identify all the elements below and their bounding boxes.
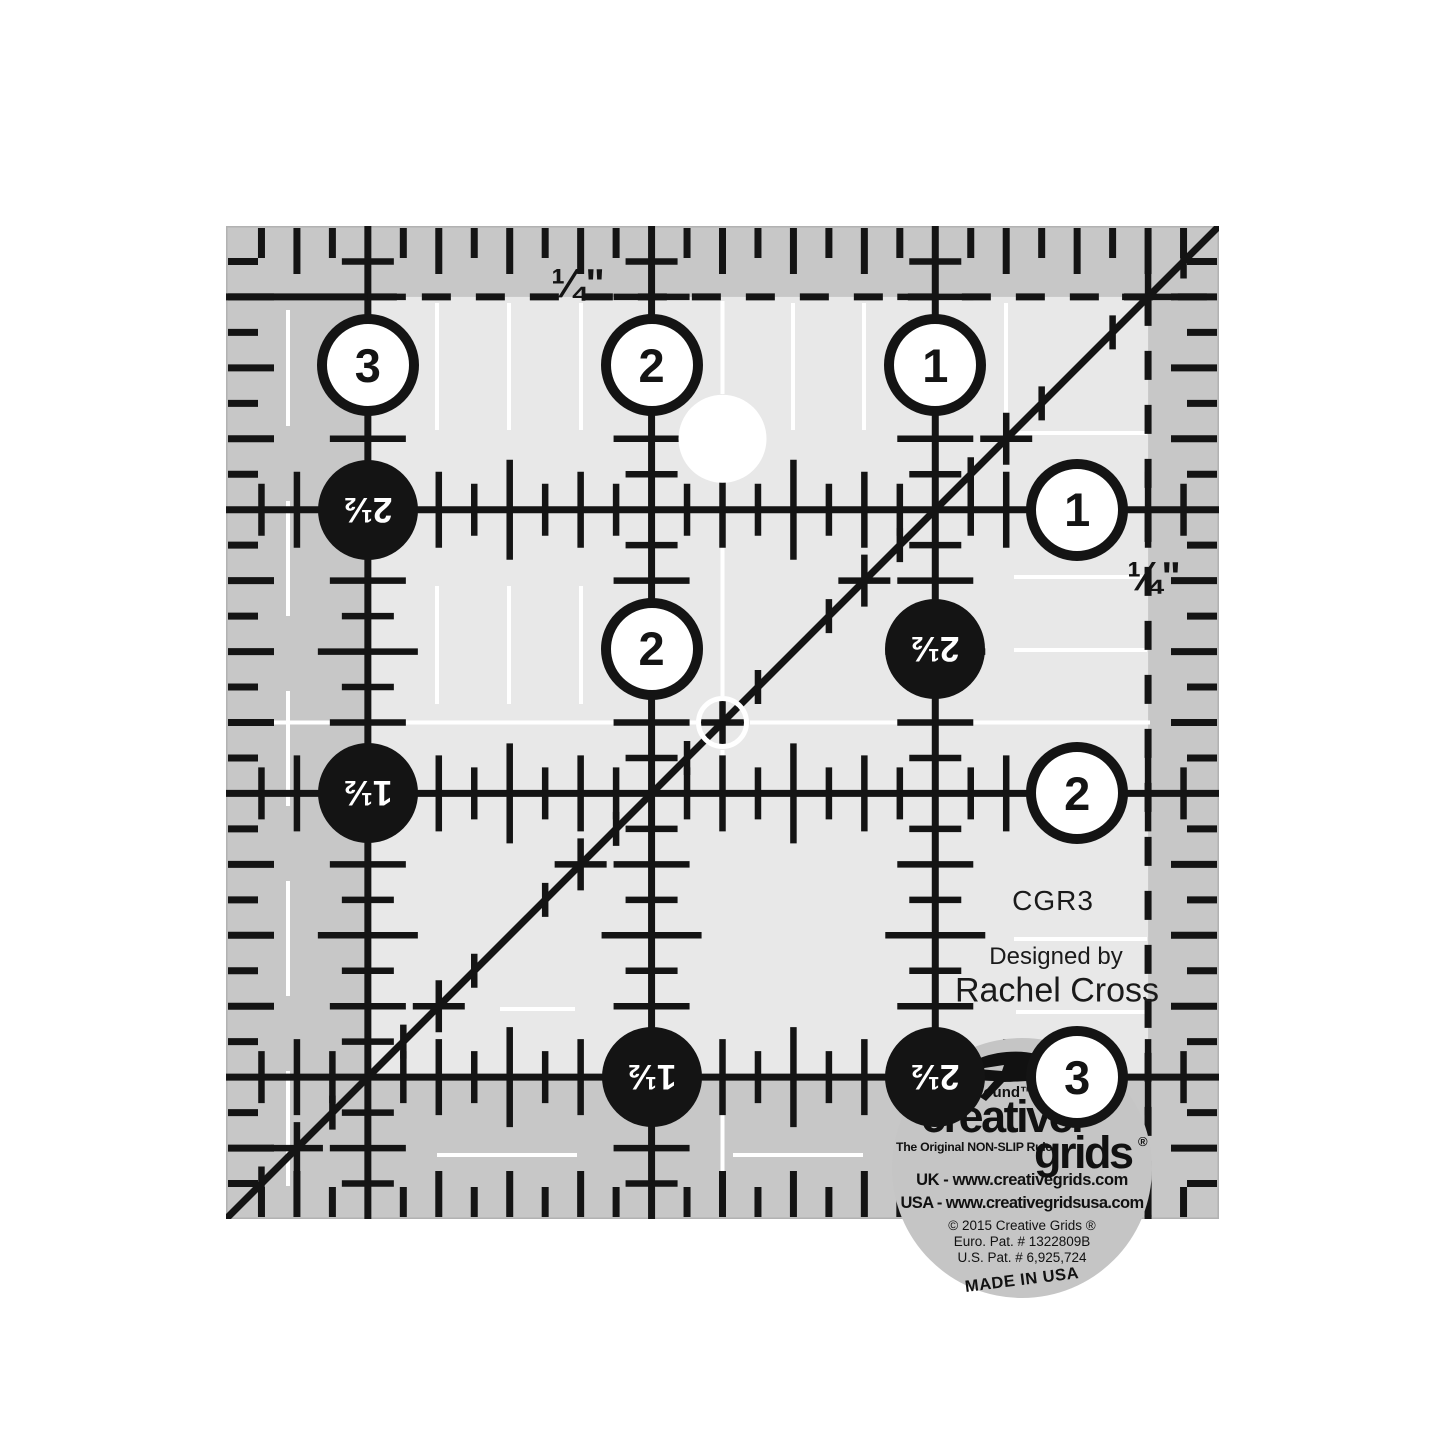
measurement-circle-black-1½: 1½ [602, 1027, 702, 1127]
measurement-circle-white-1: 1 [1026, 459, 1128, 561]
copyright-line: © 2015 Creative Grids ® [892, 1218, 1152, 1233]
measurement-circle-black-2½: 2½ [885, 599, 985, 699]
measurement-circle-black-2½: 2½ [885, 1027, 985, 1127]
measurement-circle-black-1½: 1½ [318, 743, 418, 843]
measurement-circle-white-2: 2 [601, 598, 703, 700]
uk-website: UK - www.creativegrids.com [892, 1171, 1152, 1190]
measurement-circle-white-2: 2 [601, 314, 703, 416]
usa-website: USA - www.creativegridsusa.com [892, 1194, 1152, 1213]
registered-mark: ® [1138, 1134, 1148, 1149]
model-code: CGR3 [1012, 885, 1094, 917]
quarter-inch-label-right: ¼" [1127, 554, 1181, 601]
measurement-circle-white-1: 1 [884, 314, 986, 416]
euro-patent: Euro. Pat. # 1322809B [892, 1234, 1152, 1249]
designer-name: Rachel Cross [955, 972, 1159, 1011]
measurement-circle-white-2: 2 [1026, 742, 1128, 844]
designed-by-label: Designed by [989, 943, 1122, 971]
brand-tagline: The Original NON-SLIP Ruler [896, 1140, 1056, 1154]
product-photo: Turn-a-Round™ creative. grids ® The Orig… [0, 0, 1445, 1445]
measurement-circle-white-3: 3 [317, 314, 419, 416]
quarter-inch-label-top: ¼" [551, 261, 605, 308]
measurement-circle-white-3: 3 [1026, 1026, 1128, 1128]
measurement-circle-black-2½: 2½ [318, 460, 418, 560]
